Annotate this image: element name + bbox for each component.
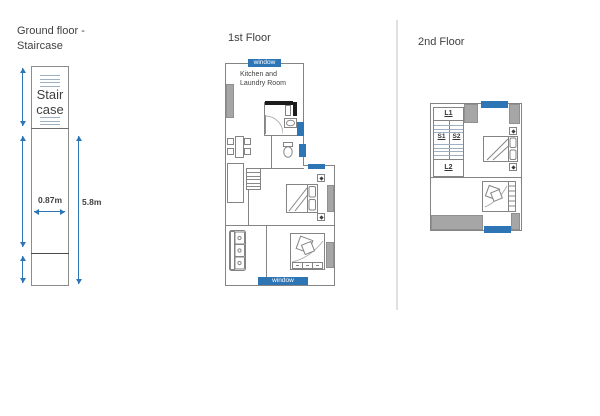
shower-wall: [293, 102, 297, 116]
window-bar-top: window: [248, 59, 281, 67]
stair-tread-line: [434, 129, 463, 130]
window-bar: [299, 144, 306, 157]
window-bar: [484, 226, 511, 233]
second-floor-title: 2nd Floor: [418, 35, 464, 50]
desk-area-icon: [482, 181, 516, 212]
stair-tread-line: [40, 75, 60, 76]
stair-landing-divider: [31, 128, 69, 129]
staircase-box: S1 S2: [433, 120, 464, 160]
window-bar-bottom: window: [258, 277, 308, 285]
wall-segment: [521, 103, 522, 231]
fixture-icon: [509, 127, 517, 135]
stair-tread-line: [40, 79, 60, 80]
fixture-icon: [509, 163, 517, 171]
height-arrow-lower: [22, 256, 23, 283]
desk-area-icon: [290, 233, 325, 270]
landing-upper-label: L1: [434, 108, 463, 120]
wall-block: [509, 104, 520, 124]
height-dimension-label: 5.8m: [82, 197, 101, 207]
first-floor-title: 1st Floor: [228, 31, 271, 46]
ground-floor-title-line1: Ground floor -: [17, 24, 85, 39]
stair-landing-divider: [31, 253, 69, 254]
window-bar-bottom-label: window: [258, 277, 308, 285]
stair-tread-line: [40, 124, 60, 125]
landing-upper-box: L1: [433, 107, 464, 121]
staircase-label-line1: Stair: [31, 88, 69, 103]
wall-block: [464, 104, 478, 123]
wardrobe: [327, 185, 334, 212]
staircase-label-line2: case: [31, 103, 69, 118]
wall-segment: [225, 285, 335, 286]
kitchen-counter: [226, 84, 234, 118]
sofa-icon: [229, 230, 246, 271]
stair-tread-line: [434, 144, 463, 145]
stair-tread-line: [434, 155, 463, 156]
kitchen-room-label-line2: Laundry Room: [240, 79, 286, 88]
ground-floor-title: Ground floor - Staircase: [17, 24, 85, 54]
stair-right-label: S2: [449, 133, 464, 140]
closet-outline: [227, 163, 244, 203]
dining-table-icon: [226, 136, 252, 159]
shower-fixture: [285, 105, 291, 116]
stair-tread-line: [434, 148, 463, 149]
landing-lower-box: L2: [433, 159, 464, 177]
interior-staircase: [246, 168, 261, 190]
stair-tread-line: [40, 121, 60, 122]
wardrobe: [326, 242, 334, 268]
window-bar: [297, 122, 304, 136]
floor-plan-canvas: Ground floor - Staircase Stair case 0.87…: [0, 0, 600, 416]
window-bar: [308, 164, 325, 169]
wall-segment: [430, 103, 431, 231]
ground-floor-title-line2: Staircase: [17, 39, 85, 54]
stair-tread-line: [434, 151, 463, 152]
landing-lower-label: L2: [434, 160, 463, 176]
bed-icon: [483, 136, 518, 162]
bed-icon: [286, 184, 318, 213]
sink-icon: [284, 118, 297, 128]
stair-tread-line: [247, 172, 260, 173]
kitchen-room-label: Kitchen and Laundry Room: [240, 70, 286, 88]
height-arrow-total: [78, 136, 79, 284]
height-arrow-middle: [22, 136, 23, 247]
wall-block: [431, 215, 483, 230]
section-divider: [396, 20, 398, 310]
stair-tread-line: [434, 125, 463, 126]
fixture-icon: [317, 174, 325, 182]
width-arrow: [34, 211, 65, 212]
window-bar-top-label: window: [248, 59, 281, 67]
fixture-icon: [317, 213, 325, 221]
stair-left-label: S1: [434, 133, 449, 140]
stair-center-divider: [449, 121, 450, 159]
stair-tread-line: [247, 183, 260, 184]
stair-tread-line: [40, 82, 60, 83]
window-bar: [481, 101, 508, 108]
wall-segment: [430, 177, 522, 178]
height-arrow-upper: [22, 68, 23, 126]
wall-segment: [225, 225, 335, 226]
staircase-label: Stair case: [31, 88, 69, 117]
stair-tread-line: [247, 176, 260, 177]
toilet-icon: [282, 142, 294, 158]
kitchen-room-label-line1: Kitchen and: [240, 70, 286, 79]
wall-block: [511, 213, 520, 230]
stair-tread-line: [247, 179, 260, 180]
stair-tread-line: [40, 117, 60, 118]
width-dimension-label: 0.87m: [31, 195, 69, 205]
door-arc-icon: [264, 115, 283, 135]
wall-segment: [271, 135, 272, 168]
stair-tread-line: [247, 186, 260, 187]
